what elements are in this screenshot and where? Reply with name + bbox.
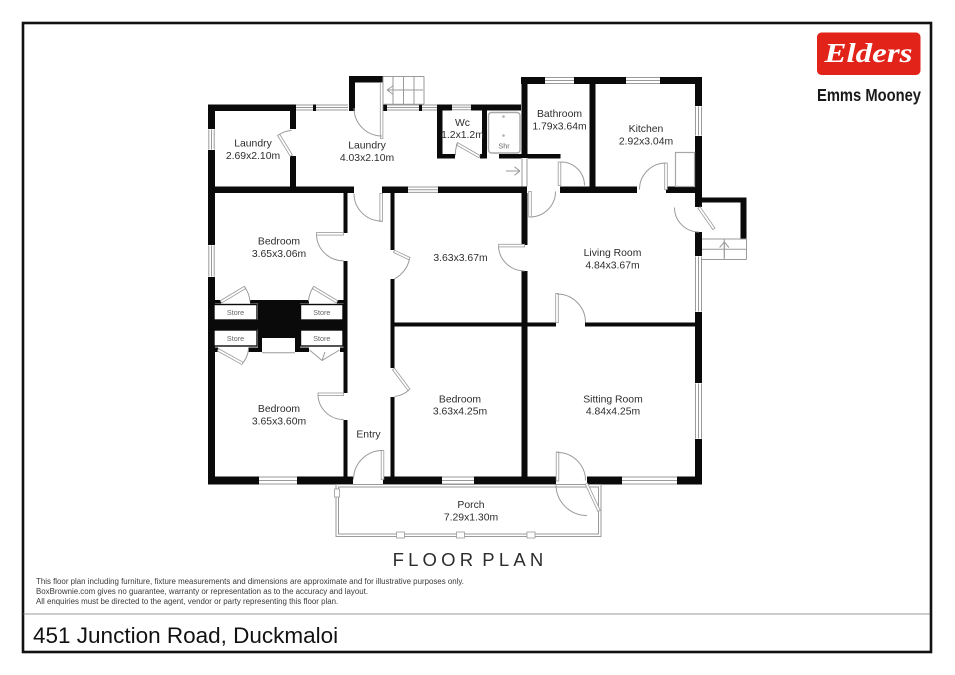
svg-text:1.79x3.64m: 1.79x3.64m — [532, 122, 586, 133]
svg-text:4.03x2.10m: 4.03x2.10m — [340, 153, 394, 164]
svg-text:Store: Store — [227, 308, 244, 317]
svg-text:Laundry: Laundry — [348, 141, 386, 152]
svg-text:All enquiries must be directed: All enquiries must be directed to the ag… — [36, 597, 338, 606]
svg-text:Bedroom: Bedroom — [258, 404, 300, 415]
svg-text:451 Junction Road, Duckmaloi: 451 Junction Road, Duckmaloi — [33, 623, 338, 648]
svg-text:1.2x1.2m: 1.2x1.2m — [441, 130, 484, 141]
svg-text:Porch: Porch — [457, 500, 484, 511]
svg-text:Laundry: Laundry — [234, 139, 272, 150]
svg-text:Kitchen: Kitchen — [629, 124, 664, 135]
svg-text:4.84x3.67m: 4.84x3.67m — [585, 261, 639, 272]
svg-text:Store: Store — [313, 334, 330, 343]
svg-text:BoxBrownie.com gives no guaran: BoxBrownie.com gives no guarantee, warra… — [36, 587, 368, 596]
svg-text:Living Room: Living Room — [584, 248, 642, 259]
svg-text:Bathroom: Bathroom — [537, 109, 582, 120]
svg-text:3.65x3.60m: 3.65x3.60m — [252, 417, 306, 428]
svg-text:4.84x4.25m: 4.84x4.25m — [586, 407, 640, 418]
svg-text:FLOORPLAN: FLOORPLAN — [393, 549, 548, 570]
svg-text:This floor plan including furn: This floor plan including furniture, fix… — [36, 577, 464, 586]
svg-text:3.63x4.25m: 3.63x4.25m — [433, 407, 487, 418]
svg-text:Shr: Shr — [498, 141, 510, 150]
svg-text:2.92x3.04m: 2.92x3.04m — [619, 137, 673, 148]
svg-text:Emms Mooney: Emms Mooney — [817, 85, 921, 105]
svg-text:2.69x2.10m: 2.69x2.10m — [226, 151, 280, 162]
svg-text:Bedroom: Bedroom — [258, 237, 300, 248]
svg-text:Store: Store — [313, 308, 330, 317]
svg-text:3.63x3.67m: 3.63x3.67m — [433, 253, 487, 264]
svg-text:7.29x1.30m: 7.29x1.30m — [444, 513, 498, 524]
svg-text:Elders: Elders — [823, 37, 912, 68]
svg-text:Wc: Wc — [455, 118, 470, 129]
svg-text:Store: Store — [227, 334, 244, 343]
svg-text:3.65x3.06m: 3.65x3.06m — [252, 249, 306, 260]
svg-text:Bedroom: Bedroom — [439, 394, 481, 405]
svg-text:Sitting Room: Sitting Room — [583, 394, 642, 405]
svg-text:Entry: Entry — [356, 429, 381, 440]
